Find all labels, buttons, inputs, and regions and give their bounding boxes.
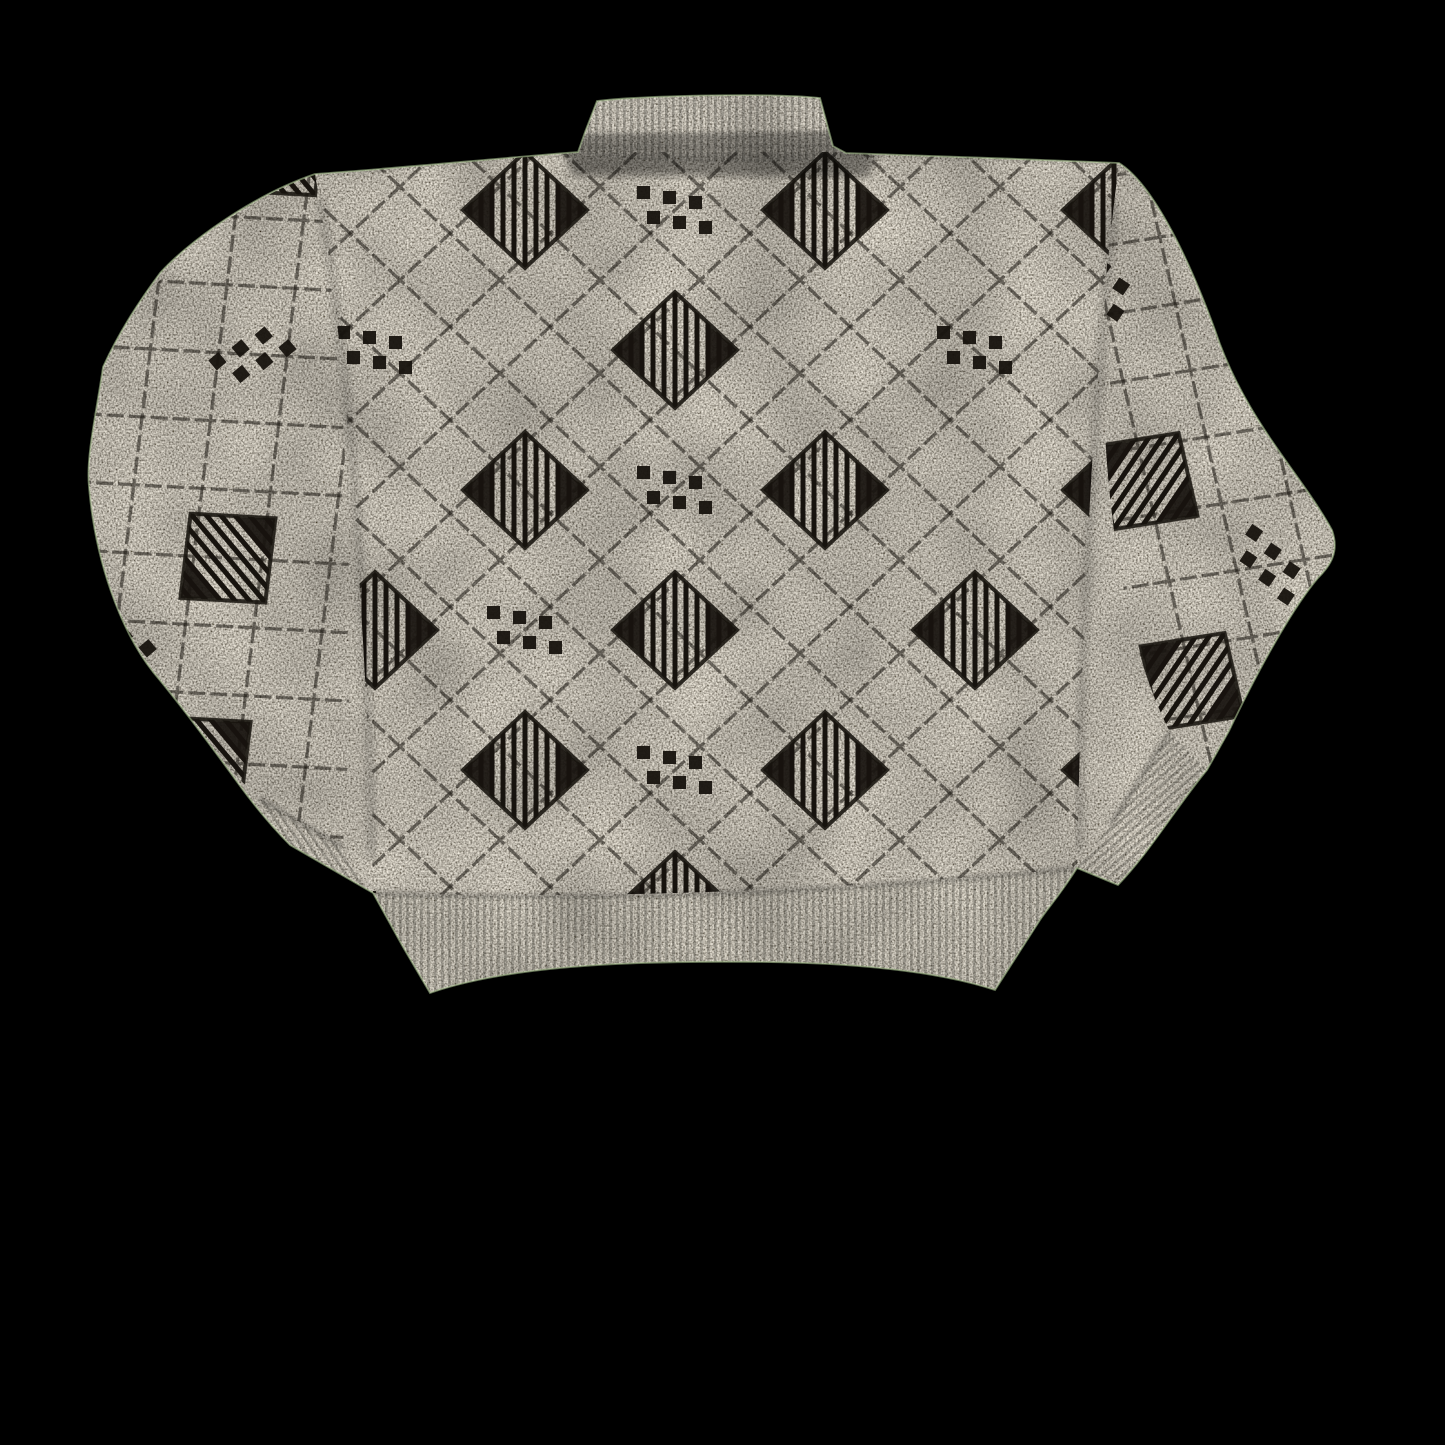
sweater-image: Vintage knit sweater, back view — [0, 0, 1445, 1445]
sweater-photo: Vintage knit sweater, back view — [0, 0, 1445, 1445]
